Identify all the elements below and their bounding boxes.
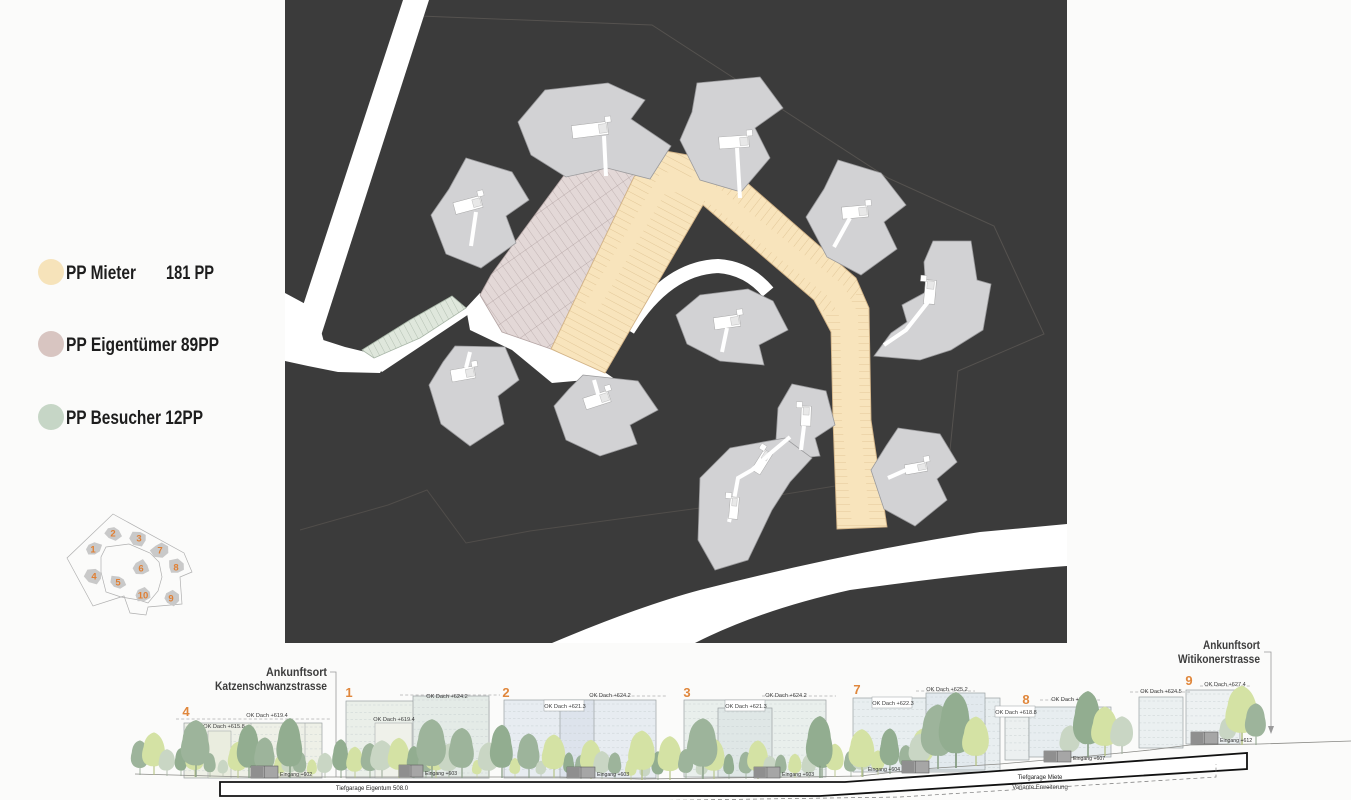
svg-text:Eingang +612: Eingang +612 (1220, 738, 1252, 744)
svg-text:Tiefgarage Eigentum 508.0: Tiefgarage Eigentum 508.0 (336, 786, 409, 792)
svg-text:Ankunftsort: Ankunftsort (266, 667, 327, 679)
svg-text:2: 2 (502, 685, 509, 700)
svg-text:Witikonerstrasse: Witikonerstrasse (1178, 654, 1260, 666)
svg-text:Variante Erweiterung: Variante Erweiterung (1012, 785, 1068, 791)
svg-text:OK Dach +621.3: OK Dach +621.3 (544, 704, 586, 710)
svg-text:Eingang +603: Eingang +603 (425, 771, 457, 777)
svg-text:OK Dach +619.4: OK Dach +619.4 (373, 717, 415, 723)
svg-text:6: 6 (138, 564, 143, 575)
svg-text:3: 3 (683, 685, 690, 700)
svg-text:Eingang +604: Eingang +604 (868, 767, 900, 773)
svg-text:8: 8 (1022, 692, 1029, 707)
svg-text:9: 9 (1185, 673, 1192, 688)
svg-text:10: 10 (138, 591, 149, 602)
svg-text:OK Dach +624.2: OK Dach +624.2 (765, 693, 807, 699)
svg-text:4: 4 (91, 572, 97, 583)
svg-text:OK Dach +619.4: OK Dach +619.4 (246, 713, 288, 719)
svg-text:OK Dach +621.3: OK Dach +621.3 (725, 704, 767, 710)
svg-text:Tiefgarage Miete: Tiefgarage Miete (1018, 775, 1063, 781)
svg-text:7: 7 (157, 546, 162, 557)
svg-text:3: 3 (136, 534, 141, 545)
svg-text:OK Dach +624.2: OK Dach +624.2 (589, 693, 631, 699)
svg-text:9: 9 (168, 594, 173, 605)
svg-text:OK Dach +625.2: OK Dach +625.2 (926, 687, 968, 693)
svg-text:OK Dach +615.8: OK Dach +615.8 (203, 724, 245, 730)
svg-text:8: 8 (173, 563, 178, 574)
svg-text:5: 5 (115, 578, 121, 589)
svg-text:2: 2 (110, 529, 115, 540)
svg-text:Eingang +607: Eingang +607 (1073, 756, 1105, 762)
svg-text:OK Dach +624.2: OK Dach +624.2 (426, 694, 468, 700)
svg-text:OK Dach +622.3: OK Dach +622.3 (872, 701, 914, 707)
svg-text:PP Besucher 12PP: PP Besucher 12PP (66, 408, 203, 429)
svg-text:OK Dach +624.5: OK Dach +624.5 (1140, 689, 1182, 695)
svg-text:7: 7 (853, 682, 860, 697)
svg-text:Katzenschwanzstrasse: Katzenschwanzstrasse (215, 681, 327, 693)
svg-text:Eingang +603: Eingang +603 (782, 772, 814, 778)
svg-text:1: 1 (90, 545, 96, 556)
svg-text:Eingang +602: Eingang +602 (280, 772, 312, 778)
svg-text:OK Dach +618.8: OK Dach +618.8 (995, 710, 1037, 716)
svg-text:Ankunftsort: Ankunftsort (1203, 640, 1260, 652)
svg-text:4: 4 (182, 704, 190, 719)
svg-text:181 PP: 181 PP (166, 263, 214, 284)
svg-text:Eingang +603: Eingang +603 (597, 772, 629, 778)
svg-text:1: 1 (345, 685, 352, 700)
svg-text:PP Eigentümer 89PP: PP Eigentümer 89PP (66, 335, 219, 356)
svg-text:PP Mieter: PP Mieter (66, 263, 136, 284)
